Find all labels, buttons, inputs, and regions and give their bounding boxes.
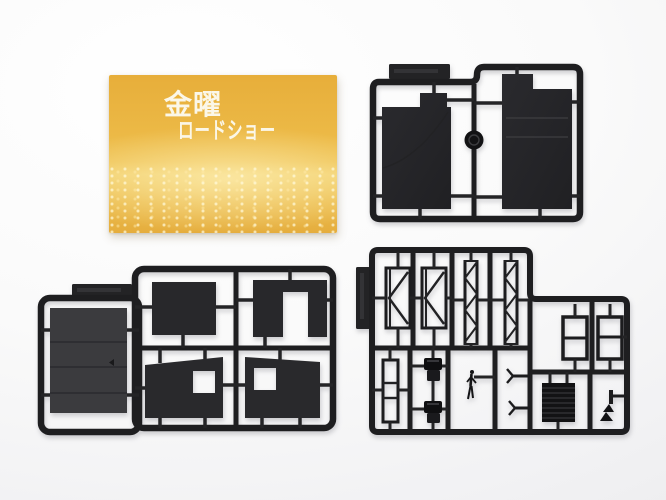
tag-embossed-text	[77, 288, 121, 292]
y-fitting-1	[507, 369, 530, 383]
side-brace-2	[413, 252, 452, 348]
product-photo: 金曜 ロードショー	[0, 0, 666, 500]
wall-panel-window-right	[245, 357, 320, 418]
chair-part-2	[424, 401, 442, 423]
disc-part	[465, 131, 484, 150]
figure-part	[467, 370, 495, 399]
sprue-detail-parts	[350, 241, 636, 439]
roof-panel-left	[382, 93, 451, 209]
wedge-parts	[600, 404, 614, 421]
tag-embossed-text	[360, 273, 364, 319]
shutter-panel	[542, 372, 575, 430]
wall-panel-plain	[152, 282, 216, 335]
ladder-frame	[372, 348, 410, 430]
y-fitting-2	[509, 401, 530, 415]
wall-panel-window-left	[145, 357, 223, 418]
roof-panel-right	[502, 74, 572, 209]
planked-wall-panel	[50, 308, 127, 413]
logo-line-1: 金曜	[109, 91, 337, 119]
golden-sea-texture	[109, 167, 337, 233]
window-frame-1	[563, 304, 587, 372]
sprue-wall-panels	[33, 258, 345, 442]
lattice-truss-2	[490, 252, 530, 348]
friday-roadshow-card: 金曜 ロードショー	[109, 75, 337, 233]
sprue-large-panels	[350, 52, 600, 234]
wall-panel-notched	[253, 280, 327, 337]
logo-line-2: ロードショー	[131, 119, 286, 144]
tag-embossed-text	[394, 69, 438, 73]
chair-part-1	[424, 358, 442, 381]
lattice-truss-1	[452, 252, 490, 348]
window-frame-2	[598, 304, 627, 372]
side-brace-1	[372, 252, 413, 348]
friday-roadshow-logo: 金曜 ロードショー	[109, 91, 337, 144]
